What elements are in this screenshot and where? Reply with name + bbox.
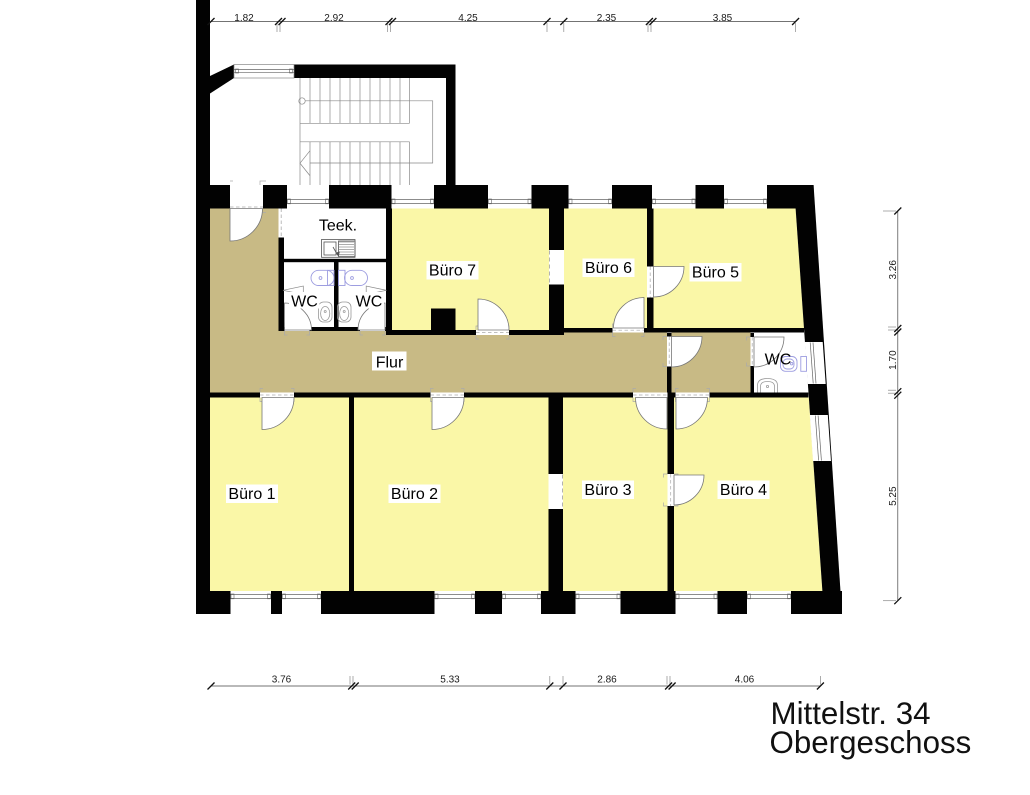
svg-text:WC: WC	[291, 294, 318, 311]
svg-text:2.92: 2.92	[324, 13, 344, 24]
svg-text:Büro 2: Büro 2	[391, 486, 438, 503]
svg-text:4.06: 4.06	[735, 675, 755, 686]
svg-text:Büro 7: Büro 7	[429, 263, 476, 280]
svg-text:5.25: 5.25	[888, 486, 899, 506]
svg-text:5.33: 5.33	[440, 675, 460, 686]
svg-text:Büro 6: Büro 6	[585, 260, 632, 277]
svg-text:Büro 4: Büro 4	[720, 482, 767, 499]
svg-text:2.35: 2.35	[597, 13, 617, 24]
svg-text:WC: WC	[356, 294, 383, 311]
svg-text:3.85: 3.85	[713, 13, 733, 24]
svg-text:Flur: Flur	[376, 354, 404, 371]
svg-text:1.70: 1.70	[888, 350, 899, 370]
svg-text:3.26: 3.26	[888, 260, 899, 280]
svg-text:Büro 3: Büro 3	[584, 482, 631, 499]
svg-text:Teek.: Teek.	[319, 218, 357, 235]
svg-text:3.76: 3.76	[272, 675, 292, 686]
svg-text:WC: WC	[765, 352, 792, 369]
svg-text:Büro 1: Büro 1	[228, 486, 275, 503]
svg-text:1.82: 1.82	[234, 13, 254, 24]
svg-text:Obergeschoss: Obergeschoss	[770, 725, 972, 760]
svg-text:Büro 5: Büro 5	[692, 265, 739, 282]
svg-text:2.86: 2.86	[597, 675, 617, 686]
svg-text:4.25: 4.25	[458, 13, 478, 24]
